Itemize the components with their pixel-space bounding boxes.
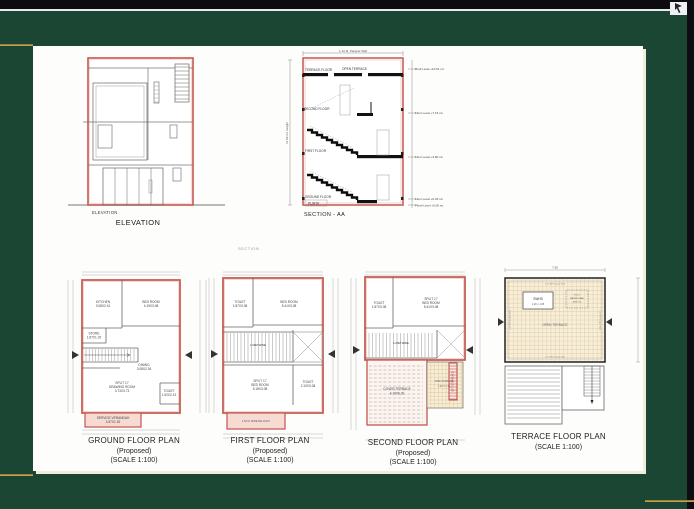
section-title: SECTION - AA (304, 212, 345, 218)
section-mini-caption: SECTION (238, 246, 259, 251)
ground-plan-linework (68, 272, 206, 434)
dining-dim: 3.08X2.34 (137, 367, 152, 371)
section-height-note: 11.89 mt. Height (285, 122, 289, 144)
second-plan-linework (351, 272, 480, 440)
open-terrace-label: OPEN TERRACE (542, 323, 567, 327)
second-level-text: Floor Level +7.16 mt. (415, 111, 443, 115)
first-plan-title-block: FIRST FLOOR PLAN (Proposed) (SCALE 1:100… (190, 436, 350, 465)
cover-terrace-dim: 4.19X6.20 (390, 392, 405, 396)
ff-bedroom2-dim: 5.18X3.08 (253, 387, 268, 391)
section-plinth-label: PLINTH (308, 202, 320, 206)
gold-trim-bottom-right (645, 500, 694, 502)
section-first-floor-label: FIRST FLOOR (305, 149, 327, 153)
parapet-note-bottom: 1.10 M Parapet Wall (545, 356, 565, 359)
section-level-annotations: Roof Level +10.51 mt. Floor Level +7.16 … (415, 67, 445, 208)
ff-balcony-label: 1.52 M. WIDE BALCONY (242, 420, 271, 423)
terrace-plan-scale: (SCALE 1:100) (481, 443, 636, 452)
first-plan-title: FIRST FLOOR PLAN (190, 436, 350, 447)
second-plan-title-block: SECOND FLOOR PLAN (Proposed) (SCALE 1:10… (333, 438, 493, 467)
first-level-text: Floor Level +3.80 mt. (415, 155, 443, 159)
section-second-floor-label: SECOND FLOOR (304, 107, 330, 111)
plinth-level-text: Plinth Level +0.00 mt. (415, 204, 444, 208)
first-plan-subtitle: (Proposed) (190, 447, 350, 456)
gf-bedroom-dim: 4.19X3.08 (144, 304, 159, 308)
terrace-plan-title: TERRACE FLOOR PLAN (481, 432, 636, 443)
swhs-label: SWHS (533, 297, 543, 301)
section-parapet-note: 1.10 M. Parapet Wall (339, 49, 367, 53)
mouse-cursor-icon (675, 3, 684, 14)
sf-bedroom-dim: 5.41X3.08 (424, 305, 439, 309)
ff-bedroom1-dim: 5.41X3.08 (282, 304, 297, 308)
ff-toilet2-dim: 2.10X3.08 (301, 384, 316, 388)
verandah-dim: 4.57X1.52 (106, 420, 121, 424)
cover-terrace-label: COVER TERRACE (383, 387, 410, 391)
sf-open-terrace-dim: 1.20 X 2.75 (438, 385, 451, 388)
gf-toilet-dim: 1.52X2.13 (162, 393, 177, 397)
second-plan-subtitle: (Proposed) (333, 449, 493, 458)
terrace-width-dim: 7.55 (552, 266, 558, 270)
ff-stair-note: 1.06M WIDE (250, 343, 266, 347)
top-black-bar (0, 0, 694, 9)
store-dim: 1.87X1.20 (87, 336, 102, 340)
gold-trim-bottom-left (0, 474, 33, 476)
kitchen-dim: 3.08X2.41 (96, 304, 111, 308)
sf-toilet-dim: 1.87X3.08 (372, 305, 387, 309)
ground-floor-plan: KITCHEN 3.08X2.41 BED ROOM 4.19X3.08 STO… (60, 270, 212, 440)
second-plan-scale: (SCALE 1:100) (333, 458, 493, 467)
parapet-note-left: 1.10 M Parapet Wall (509, 310, 512, 330)
terrace-plan-title-block: TERRACE FLOOR PLAN (SCALE 1:100) (481, 432, 636, 452)
ground-level-text: Floor Level +0.45 mt. (415, 197, 443, 201)
section-open-terrace-label: OPEN TERRACE (342, 67, 367, 71)
viewer-stage: ELEVATION ELEVATION (0, 0, 694, 509)
section-terrace-floor-label: TERRACE FLOOR (305, 68, 333, 72)
tank-line1: P.V.C (574, 295, 580, 297)
first-plan-scale: (SCALE 1:100) (190, 456, 350, 465)
ladder-label: UP TO TERRACE (451, 371, 455, 392)
elevation-linework (68, 58, 225, 205)
sf-stair-note: 1.06M WIDE (393, 341, 409, 345)
gold-trim-top-left (0, 44, 33, 46)
top-divider-line (0, 9, 694, 11)
right-black-bar (687, 0, 694, 509)
drawing-room-dim: 3.73X3.73 (115, 389, 130, 393)
first-floor-plan: TOILET 1.87X3.08 BED ROOM 5.41X3.08 1.06… (205, 270, 345, 442)
parapet-note-right: 1.10 M Parapet Wall (599, 310, 602, 330)
terrace-plan-linework (498, 268, 640, 424)
section-drawing: TERRACE FLOOR OPEN TERRACE SECOND FLOOR … (282, 48, 454, 223)
first-plan-linework (209, 272, 338, 438)
tank-line3: (500 LT.) (573, 302, 582, 304)
second-plan-title: SECOND FLOOR PLAN (333, 438, 493, 449)
ff-toilet1-dim: 1.87X3.08 (233, 304, 248, 308)
terrace-floor-plan: 7.55 SWHS 1.20 x 1.05 P.V.C WATER TANK (… (498, 262, 650, 444)
parapet-note-top: 1.10 M Parapet Wall (545, 283, 565, 286)
swhs-dim: 1.20 x 1.05 (532, 303, 545, 306)
roof-level-text: Roof Level +10.51 mt. (415, 67, 445, 71)
elevation-label-small: ELEVATION (92, 210, 118, 215)
elevation-label: ELEVATION (116, 218, 161, 227)
drawing-sheet: ELEVATION ELEVATION (33, 46, 643, 471)
section-linework (288, 51, 416, 208)
second-floor-plan: TOILET 1.87X3.08 SPLIT 17 BED ROOM 5.41X… (345, 270, 495, 448)
tank-line2: WATER TANK (570, 297, 584, 300)
section-ground-floor-label: GROUND FLOOR (305, 195, 332, 199)
elevation-drawing: ELEVATION ELEVATION (60, 52, 265, 230)
